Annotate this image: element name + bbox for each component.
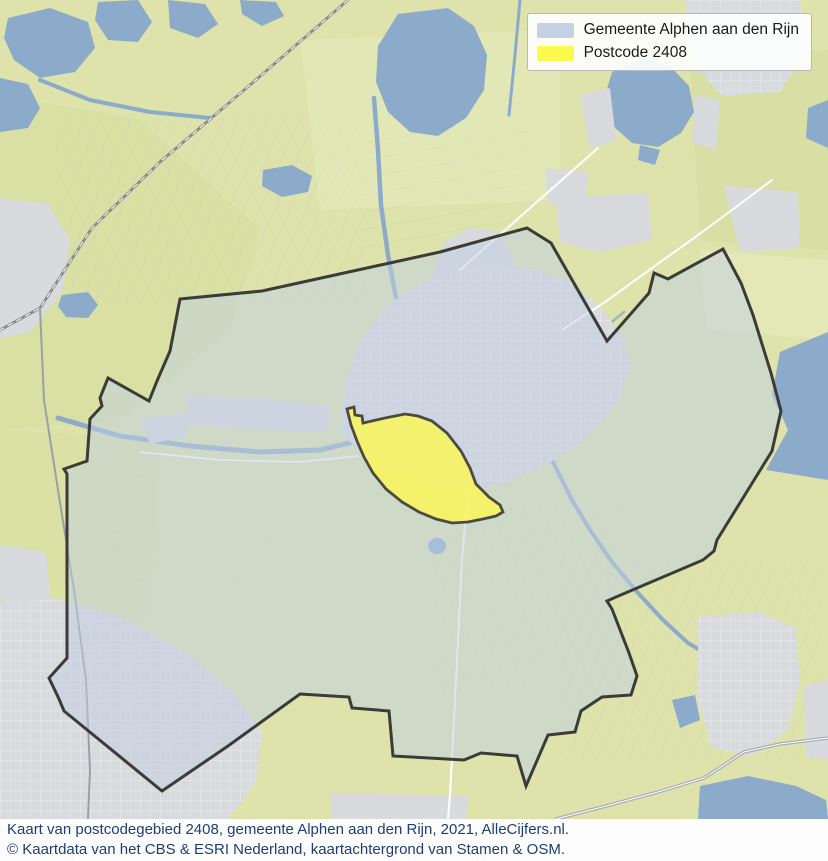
postcode-map-page: Gemeente Alphen aan den Rijn Postcode 24… [0,0,828,861]
legend-label-postcode: Postcode 2408 [584,44,687,62]
caption-line-1: Kaart van postcodegebied 2408, gemeente … [7,820,828,840]
map-canvas [0,0,828,819]
map-image [0,0,828,819]
map-legend: Gemeente Alphen aan den Rijn Postcode 24… [527,13,812,71]
legend-swatch-postcode [537,46,574,61]
legend-swatch-gemeente [537,23,574,38]
caption-line-2: © Kaartdata van het CBS & ESRI Nederland… [7,840,828,860]
legend-item-postcode: Postcode 2408 [537,44,799,62]
legend-item-gemeente: Gemeente Alphen aan den Rijn [537,21,799,39]
map-caption: Kaart van postcodegebied 2408, gemeente … [0,819,828,861]
legend-label-gemeente: Gemeente Alphen aan den Rijn [584,21,799,39]
